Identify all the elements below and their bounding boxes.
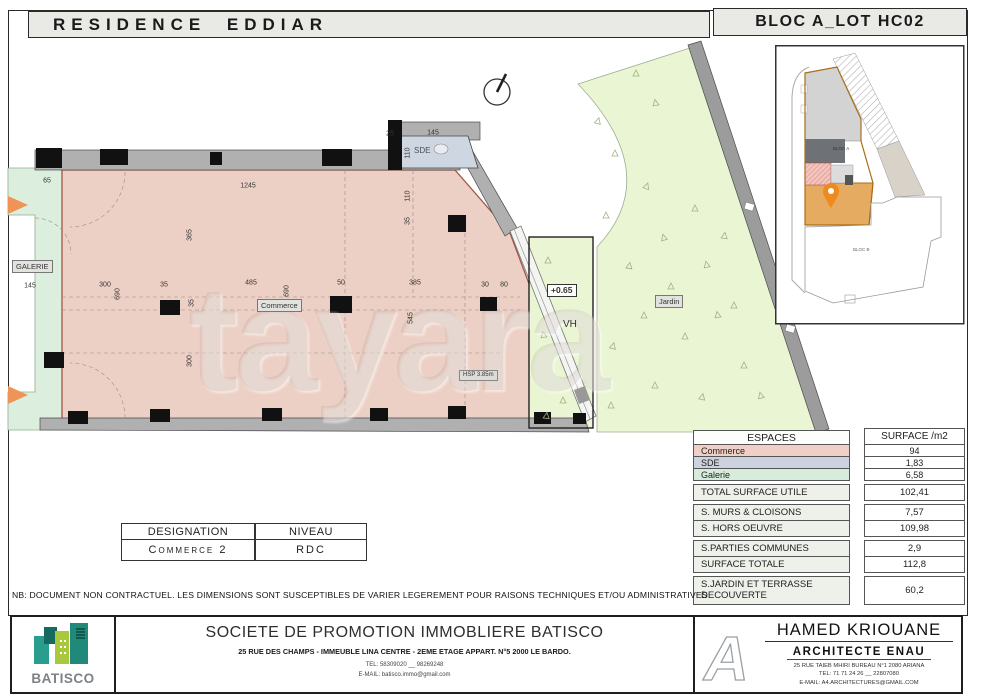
promoter-address: 25 RUE DES CHAMPS - IMMEUBLE LINA CENTRE… <box>116 647 693 656</box>
table-row: Galerie 6,58 <box>693 468 965 481</box>
batisco-logo-box: BATISCO <box>10 615 116 694</box>
floor-plan-sheet: RESIDENCE EDDIAR BLOC A_LOT HC02 <box>0 0 1000 696</box>
batisco-logo-text: BATISCO <box>31 671 94 686</box>
espaces-col1-header: ESPACES <box>693 430 850 445</box>
row-value: 7,57 <box>864 504 965 521</box>
level-label: +0.65 <box>547 284 577 297</box>
designation-data-row: Commerce 2 RDC <box>121 539 367 561</box>
table-row: S. MURS & CLOISONS 7,57 <box>693 504 965 521</box>
inset-bloc-a-label: BLOC A <box>833 146 849 151</box>
dimension-label: 35 <box>405 217 412 225</box>
architect-email: E-MAIL: A4.ARCHITECTURES@GMAIL.COM <box>765 680 953 686</box>
title-block-footer: BATISCO SOCIETE DE PROMOTION IMMOBLIERE … <box>10 615 963 694</box>
dimension-label: 35 <box>189 299 196 307</box>
row-label: S.JARDIN ET TERRASSE DECOUVERTE <box>693 576 850 605</box>
row-label: S.PARTIES COMMUNES <box>693 540 850 557</box>
dimension-label: 365 <box>187 229 194 241</box>
table-row: S. HORS OEUVRE 109,98 <box>693 520 965 537</box>
dimension-label: 300 <box>99 282 111 289</box>
row-label: SURFACE TOTALE <box>693 556 850 573</box>
site-plan-inset: BLOC A BLOC B <box>776 46 964 324</box>
table-row: S.JARDIN ET TERRASSE DECOUVERTE 60,2 <box>693 576 965 605</box>
table-row: S.PARTIES COMMUNES 2,9 <box>693 540 965 557</box>
dimension-label: 690 <box>115 288 122 300</box>
dimension-label: 30 <box>481 282 489 289</box>
sde-label: SDE <box>414 146 430 155</box>
dimension-label: 110 <box>405 190 412 201</box>
architect-name: HAMED KRIOUANE <box>765 621 953 642</box>
dimension-label: 65 <box>43 178 51 185</box>
svg-text:A: A <box>702 625 749 688</box>
dimension-label: 35 <box>160 282 168 289</box>
galerie-label: GALERIE <box>12 260 53 273</box>
architect-tel: TEL: 71 71 24 26 __ 22807080 <box>765 671 953 677</box>
dimension-label: 145 <box>427 130 439 137</box>
dimension-label: 545 <box>408 312 415 324</box>
row-value: 102,41 <box>864 484 965 501</box>
architect-details: HAMED KRIOUANE ARCHITECTE ENAU 25 RUE TA… <box>765 617 961 692</box>
row-label: S. MURS & CLOISONS <box>693 504 850 521</box>
row-value: 112,8 <box>864 556 965 573</box>
dimension-label: 300 <box>187 355 194 367</box>
architect-address: 25 RUE TAIEB MHIRI BUREAU N°1 2080 ARIAN… <box>765 663 953 669</box>
entry-arrows <box>8 196 28 404</box>
espaces-header-row: ESPACES SURFACE /m2 <box>693 430 965 445</box>
north-symbol <box>484 74 510 105</box>
niveau-value: RDC <box>255 539 367 561</box>
jardin-label: Jardin <box>655 295 683 308</box>
dimension-label: 145 <box>24 283 36 290</box>
row-value: 2,9 <box>864 540 965 557</box>
row-label: TOTAL SURFACE UTILE <box>693 484 850 501</box>
dimension-label: 50 <box>337 280 345 287</box>
dimension-label: 385 <box>409 280 421 287</box>
vh-label: VH <box>563 319 577 330</box>
inset-bloc-b-label: BLOC B <box>853 247 870 252</box>
row-value: 60,2 <box>864 576 965 605</box>
commerce-label: Commerce <box>257 299 302 312</box>
batisco-logo-icon <box>34 623 92 669</box>
row-label: S. HORS OEUVRE <box>693 520 850 537</box>
row-value: 109,98 <box>864 520 965 537</box>
table-row-total: TOTAL SURFACE UTILE 102,41 <box>693 484 965 501</box>
espaces-col2-header: SURFACE /m2 <box>864 428 965 445</box>
hsp-label: HSP 3.85m <box>459 370 498 381</box>
architect-title: ARCHITECTE ENAU <box>787 645 931 660</box>
dimension-label: 110 <box>405 147 412 158</box>
dimension-label: 690 <box>284 285 291 297</box>
niveau-col-header: NIVEAU <box>255 523 367 540</box>
table-row: SURFACE TOTALE 112,8 <box>693 556 965 573</box>
promoter-info-box: SOCIETE DE PROMOTION IMMOBLIERE BATISCO … <box>114 615 695 694</box>
promoter-tel: TEL: 58309020 __ 98269248 <box>116 662 693 668</box>
disclaimer-note: NB: DOCUMENT NON CONTRACTUEL. LES DIMENS… <box>12 590 708 600</box>
designation-col-header: DESIGNATION <box>121 523 255 540</box>
dimension-label: 485 <box>245 280 257 287</box>
dimension-label: 1245 <box>240 183 256 190</box>
espaces-table: ESPACES SURFACE /m2 Commerce 94 SDE 1,83… <box>693 431 965 605</box>
designation-value: Commerce 2 <box>121 539 255 561</box>
architect-info-box: A HAMED KRIOUANE ARCHITECTE ENAU 25 RUE … <box>693 615 963 694</box>
promoter-company-name: SOCIETE DE PROMOTION IMMOBLIERE BATISCO <box>116 624 693 642</box>
dimension-label: 80 <box>500 282 508 289</box>
designation-table: DESIGNATION NIVEAU Commerce 2 RDC <box>121 524 367 561</box>
row-label: Galerie <box>693 468 850 481</box>
dimension-label: 25 <box>386 131 394 138</box>
promoter-email: E-MAIL: batisco.immo@gmail.com <box>116 672 693 678</box>
row-value: 6,58 <box>864 468 965 481</box>
a4-architect-logo-icon: A <box>695 617 765 692</box>
designation-header-row: DESIGNATION NIVEAU <box>121 523 367 540</box>
